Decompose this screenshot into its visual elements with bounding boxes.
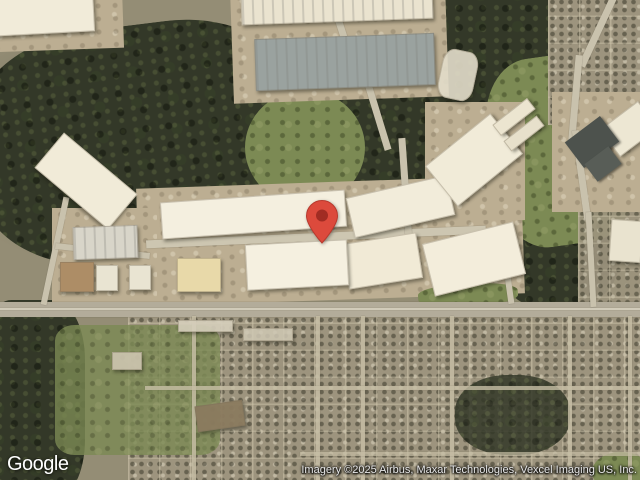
school-building-south — [112, 352, 142, 370]
warehouse-roof-row2-west — [245, 239, 349, 290]
warehouse-roof-northwest — [0, 0, 95, 37]
commercial-strip-south-2 — [243, 328, 293, 341]
commercial-strip-south — [178, 320, 233, 332]
south-street-h2 — [300, 452, 640, 456]
warehouse-roof-cream — [177, 258, 221, 292]
pin-body — [307, 201, 338, 244]
location-pin-icon[interactable] — [305, 199, 339, 245]
warehouse-roof-gray — [254, 33, 436, 91]
building-white-pair-2 — [129, 265, 151, 290]
map-attribution: Imagery ©2025 Airbus, Maxar Technologies… — [301, 464, 637, 476]
building-white-pair-1 — [96, 265, 118, 291]
south-street-h1 — [145, 386, 640, 390]
building-tan-west — [60, 262, 94, 292]
google-logo[interactable]: Google — [7, 453, 69, 476]
pin-inner-dot — [316, 210, 328, 222]
truck-terminal — [72, 225, 138, 260]
map-canvas[interactable]: Google Imagery ©2025 Airbus, Maxar Techn… — [0, 0, 640, 480]
south-street-v1 — [192, 316, 196, 480]
highway-lane-line — [0, 308, 640, 310]
warehouse-roof-far-east — [609, 219, 640, 263]
